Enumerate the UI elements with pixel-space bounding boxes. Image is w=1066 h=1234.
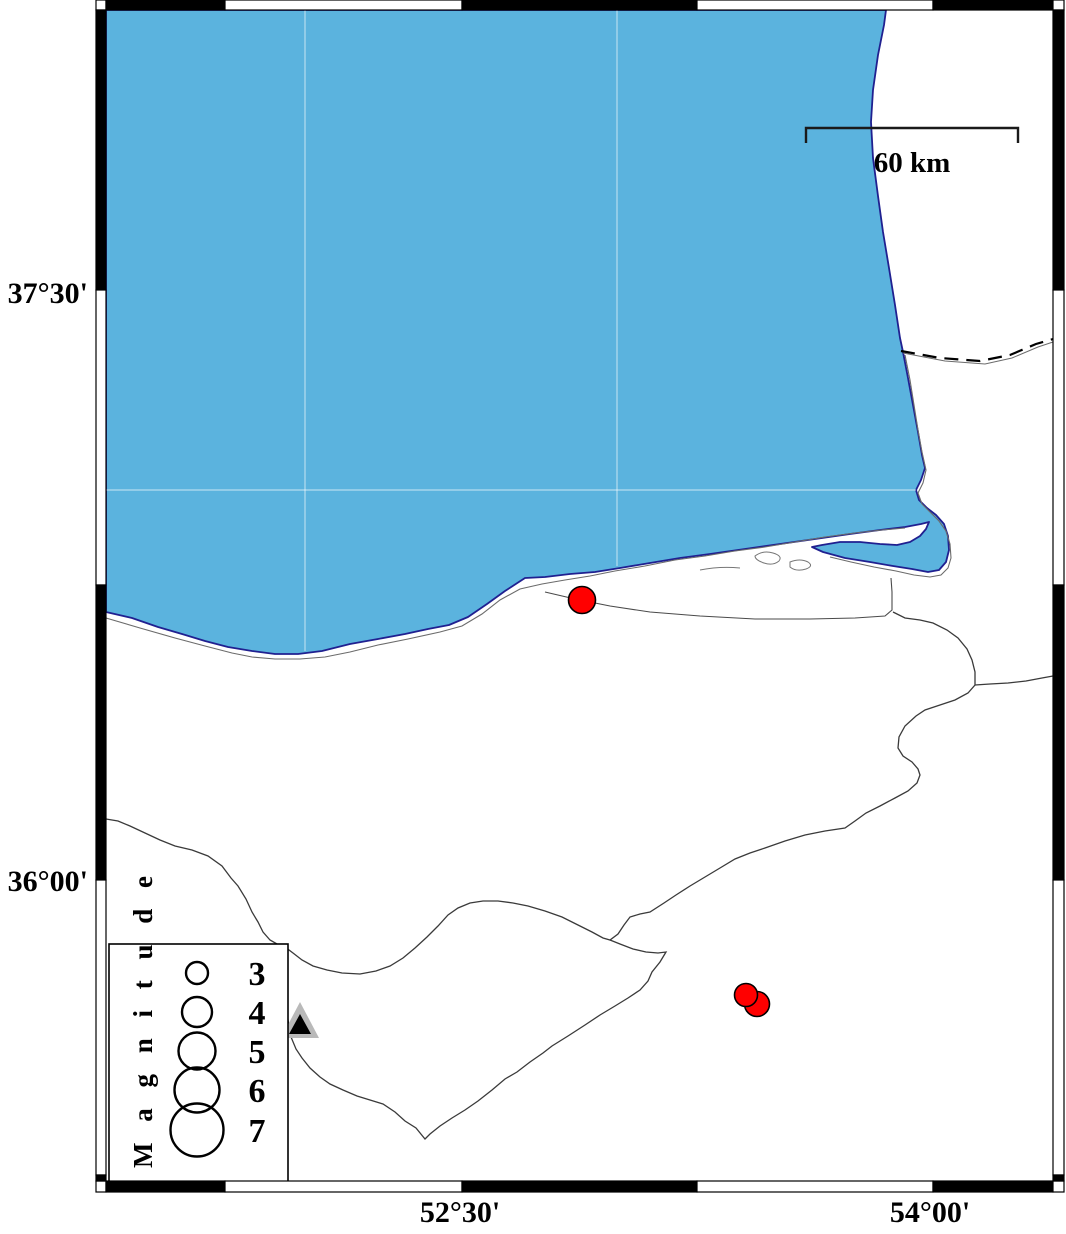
lon-label-left: 52°30' (420, 1196, 500, 1229)
seismicity-map: 60 km M a g n i t u d e 34567 (0, 0, 1066, 1229)
legend-value-m3: 3 (249, 956, 266, 993)
legend-value-m7: 7 (249, 1113, 266, 1150)
lat-label-bottom: 36°00' (8, 865, 88, 898)
legend-circle-m4 (182, 997, 212, 1027)
legend-value-m6: 6 (249, 1073, 266, 1110)
legend-value-m5: 5 (249, 1034, 266, 1071)
legend-value-m4: 4 (249, 995, 266, 1032)
earthquake-marker (735, 984, 758, 1007)
scale-bar-label: 60 km (874, 147, 951, 179)
legend-circle-m5 (179, 1033, 216, 1070)
map-canvas: 60 km M a g n i t u d e 34567 (0, 0, 1066, 1229)
lat-label-top: 37°30' (8, 277, 88, 310)
legend-title: M a g n i t u d e (128, 869, 158, 1168)
legend-circle-m7 (171, 1104, 224, 1157)
legend-circle-m3 (186, 962, 208, 984)
lon-label-right: 54°00' (890, 1196, 970, 1229)
earthquake-marker (569, 587, 596, 614)
